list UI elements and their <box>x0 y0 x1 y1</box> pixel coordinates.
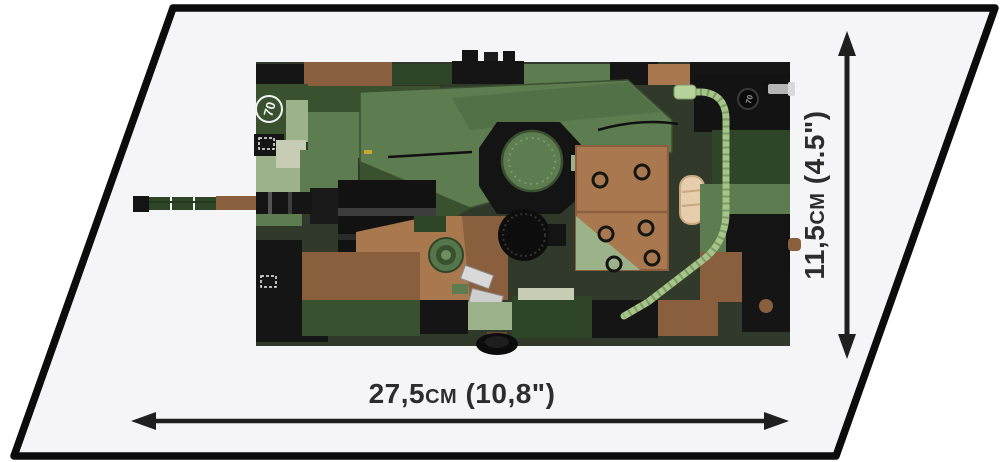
product-dimensions-graphic: 70 70 27,5cm (10,8") 11,5cm (4.5") <box>0 0 1000 462</box>
tank-silver-peg <box>762 82 795 96</box>
height-dimension-label: 11,5cm (4.5") <box>800 65 830 325</box>
tank-hull <box>254 61 790 346</box>
badge-70: 70 <box>738 89 758 109</box>
width-dimension-label: 27,5cm (10,8") <box>282 379 642 409</box>
